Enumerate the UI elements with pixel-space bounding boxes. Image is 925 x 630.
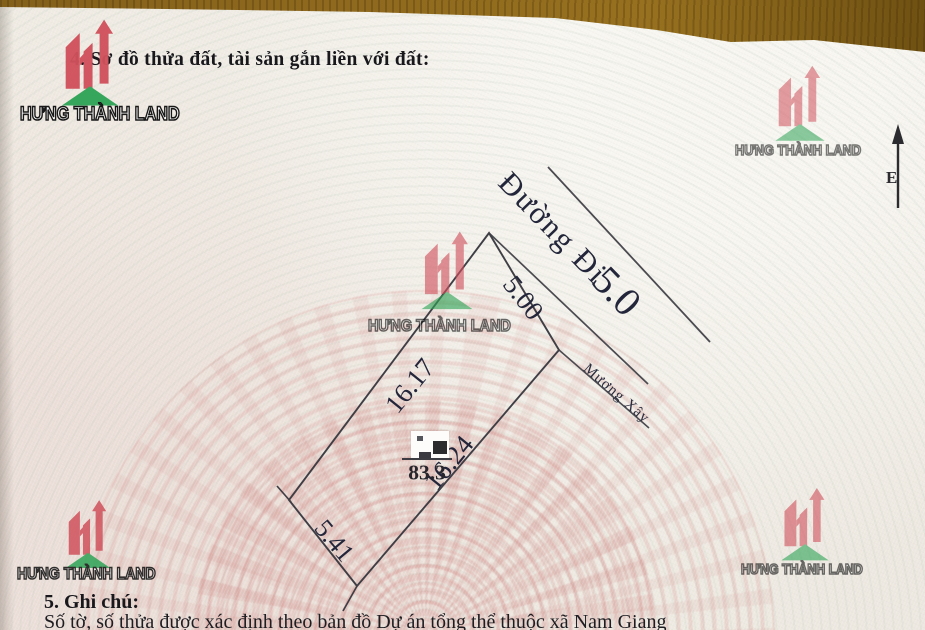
certificate-photo: 4. Sơ đồ thửa đất, tài sản gắn liền với … <box>0 0 925 630</box>
note-text: Số tờ, số thửa được xác định theo bản đồ… <box>44 611 914 630</box>
corner-overshoot-bottom <box>343 586 357 611</box>
watermark-brand-text: HƯNG THÀNH LAND <box>17 565 156 584</box>
ht-logo-icon <box>778 480 832 564</box>
watermark-brand-text: HƯNG THÀNH LAND <box>741 562 863 578</box>
watermark-brand-text: HƯNG THÀNH LAND <box>735 142 861 159</box>
ht-logo-icon <box>772 58 828 144</box>
ht-logo-icon <box>60 494 116 570</box>
watermark-brand-text: HƯNG THÀNH LAND <box>368 316 511 336</box>
redaction-mark-square <box>433 441 447 454</box>
area-value: 83.3 <box>408 461 446 486</box>
north-label: E <box>886 168 897 187</box>
redaction-mark-small <box>417 436 423 441</box>
ht-logo-icon <box>418 218 476 318</box>
ht-logo-icon <box>58 12 122 108</box>
corner-overshoot-left <box>277 486 291 502</box>
north-arrow-icon: E <box>886 124 904 208</box>
watermark-brand-text: HƯNG THÀNH LAND <box>20 104 180 126</box>
